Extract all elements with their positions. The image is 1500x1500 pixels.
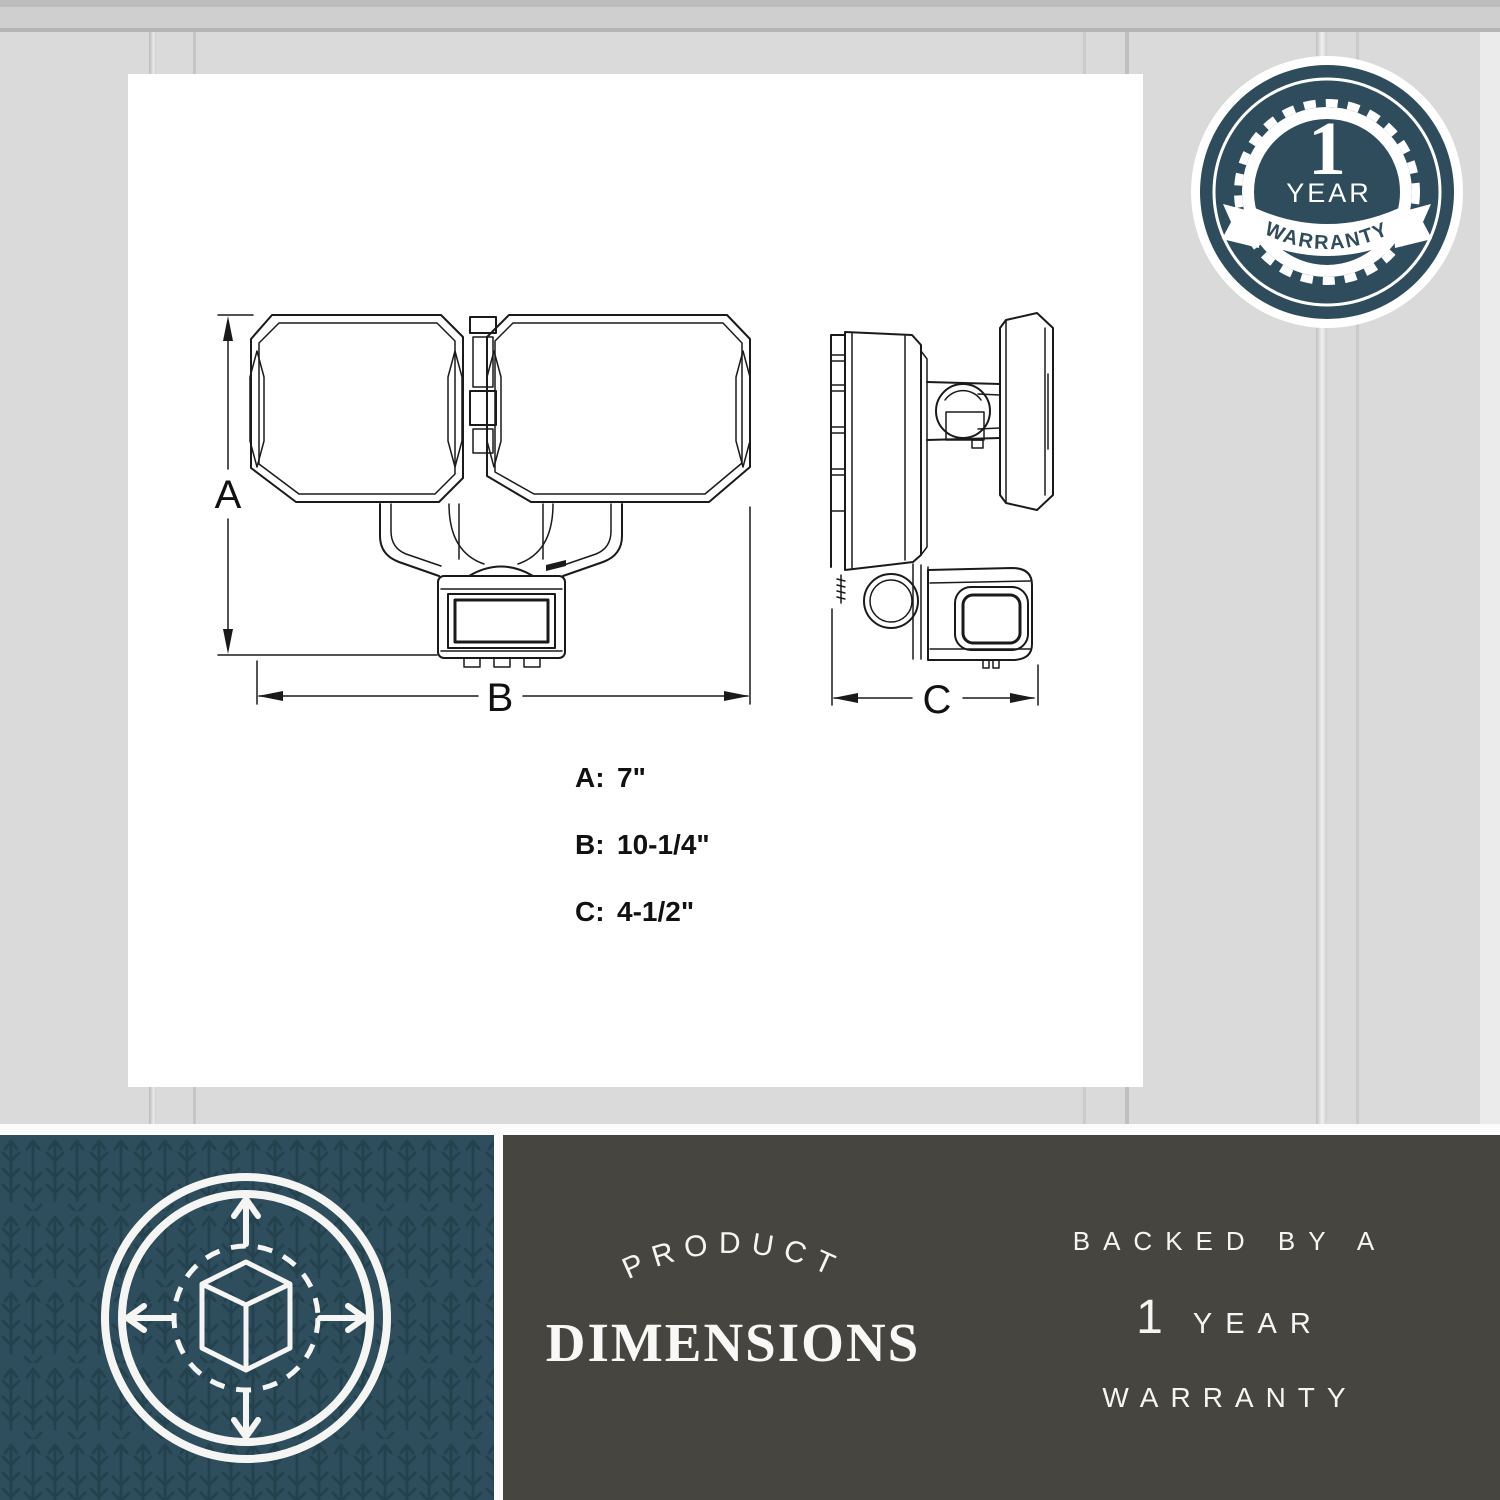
warranty-note-line1: BACKED BY A: [1073, 1226, 1388, 1256]
dimension-b-label: B: [487, 676, 514, 720]
product-arc-label: PRODUCT: [617, 1227, 848, 1286]
warranty-note-line3: WARRANTY: [1102, 1382, 1357, 1413]
spec-line-b: B:10-1/4": [575, 829, 710, 860]
side-view-drawing: [831, 313, 1053, 668]
adjustment-knob: [864, 574, 918, 628]
badge-unit: YEAR: [1286, 178, 1372, 208]
right-lamp-head: [487, 315, 750, 502]
dimensions-icon: [96, 1168, 396, 1468]
diagram-panel: A B C A:7" B:10-1/4" C:4-1/2": [128, 74, 1143, 1087]
banner-text: PRODUCT DIMENSIONS BACKED BY A 1YEAR WAR…: [503, 1135, 1500, 1500]
left-lamp-head: [251, 315, 463, 502]
lamp-head-side: [845, 332, 921, 570]
arrow-right-icon: [320, 1306, 365, 1330]
panel-gap-strip: [0, 1124, 1500, 1135]
one-year-warranty-seal: 1 YEAR WARRANTY: [1187, 52, 1467, 332]
dimension-c-label: C: [923, 678, 952, 722]
spec-line-a: A:7": [575, 762, 646, 793]
front-view-drawing: [250, 315, 750, 667]
dimensions-title: DIMENSIONS: [546, 1312, 921, 1373]
product-dimensions-image: A B C A:7" B:10-1/4" C:4-1/2": [0, 0, 1500, 1500]
warranty-note-line2: 1YEAR: [1136, 1291, 1324, 1344]
dimension-b-line: [257, 507, 750, 704]
wall-groove: [1480, 32, 1500, 1124]
pivot-ball-joint: [936, 384, 990, 438]
wall-top-shadow: [0, 0, 1500, 7]
arrow-left-icon: [127, 1306, 172, 1330]
spec-line-c: C:4-1/2": [575, 896, 694, 927]
dimension-a-label: A: [215, 473, 242, 517]
product-line-drawing: A B C A:7" B:10-1/4" C:4-1/2": [128, 74, 1143, 1087]
arrow-down-icon: [234, 1392, 258, 1437]
cube-icon: [202, 1262, 290, 1370]
banner-divider: [494, 1135, 503, 1500]
arrow-up-icon: [234, 1199, 258, 1244]
dimensions-banner-right: PRODUCT DIMENSIONS BACKED BY A 1YEAR WAR…: [503, 1135, 1500, 1500]
